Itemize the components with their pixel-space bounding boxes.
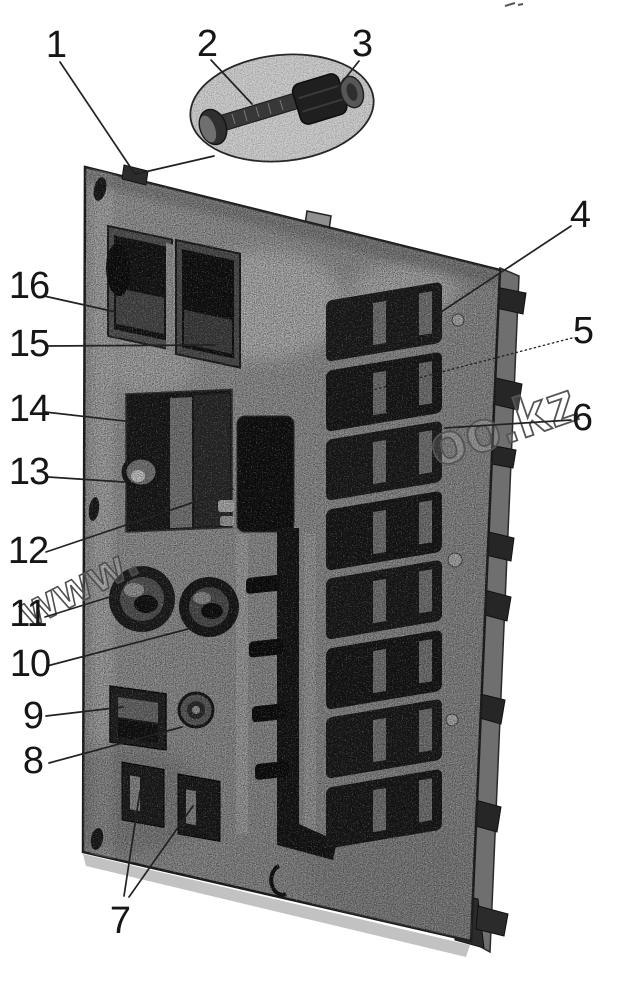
callout-label-8: 8	[23, 742, 43, 780]
callout-label-9: 9	[23, 697, 43, 735]
callout-label-12: 12	[8, 532, 48, 570]
leader-line-15	[47, 345, 215, 346]
callout-label-4: 4	[570, 196, 590, 234]
callout-label-11: 11	[9, 595, 46, 633]
callout-label-2: 2	[197, 25, 217, 63]
callout-label-14: 14	[9, 390, 49, 428]
leader-line-1	[60, 62, 135, 174]
diagram-page: www. oo.kz	[0, 0, 635, 1000]
callout-label-7: 7	[110, 902, 130, 940]
bubble-connector-line	[136, 156, 214, 174]
callout-label-10: 10	[10, 645, 50, 683]
callout-label-6: 6	[572, 399, 592, 437]
panel-illustration: www. oo.kz	[0, 0, 635, 1000]
callout-label-15: 15	[9, 325, 49, 363]
callout-label-13: 13	[9, 453, 49, 491]
callout-label-5: 5	[573, 312, 593, 350]
callout-label-16: 16	[9, 267, 49, 305]
scan-artifact	[505, 3, 523, 6]
callout-label-3: 3	[352, 25, 372, 63]
callout-label-1: 1	[46, 26, 66, 64]
